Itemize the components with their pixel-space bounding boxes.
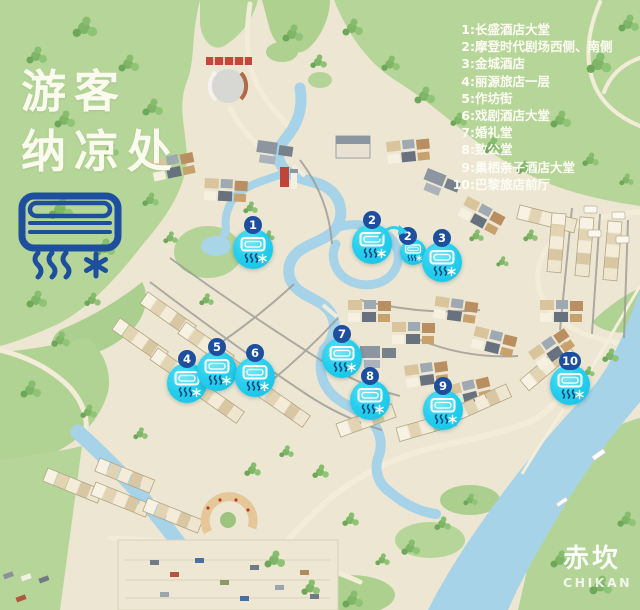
legend-item: 4:丽源旅店一层 [448, 73, 613, 90]
legend-item: 3:金城酒店 [448, 55, 613, 72]
legend-item: 1:长盛酒店大堂 [448, 21, 613, 38]
air-conditioner-icon [422, 242, 462, 282]
watermark-chinese: 赤坎 [563, 546, 632, 572]
airflow-waves-icon [35, 253, 69, 277]
air-conditioner-icon [235, 357, 275, 397]
marker-number: 5 [208, 338, 226, 356]
curved-arrow-icon [377, 223, 411, 243]
legend-item: 2:摩登时代剧场西侧、南侧 [448, 38, 613, 55]
map-marker-9: 9 [423, 390, 463, 430]
watermark-english: CHIKAN [563, 577, 632, 590]
map-marker-3: 3 [422, 242, 462, 282]
marker-number: 4 [178, 350, 196, 368]
air-conditioner-icon [197, 351, 237, 391]
legend-item: 9:巢栖亲子酒店大堂 [448, 159, 613, 176]
map-marker-1: 1 [233, 229, 273, 269]
marker-number: 1 [244, 216, 262, 234]
marker-number: 9 [434, 377, 452, 395]
air-conditioner-icon [233, 229, 273, 269]
legend: 1:长盛酒店大堂 2:摩登时代剧场西侧、南侧 3:金城酒店 4:丽源旅店一层 5… [448, 21, 613, 193]
map-marker-7: 7 [322, 338, 362, 378]
legend-item: 7:婚礼堂 [448, 124, 613, 141]
legend-item: 5:作坊街 [448, 90, 613, 107]
marker-number: 8 [361, 367, 379, 385]
watermark: 赤坎 CHIKAN [563, 546, 632, 590]
snowflake-asterisk-icon [86, 254, 105, 276]
title-line-1: 游客 [21, 62, 180, 122]
legend-item: 10:巴黎旅店前厅 [448, 176, 613, 193]
legend-item: 8:致公堂 [448, 141, 613, 158]
marker-number: 6 [246, 344, 264, 362]
map-marker-8: 8 [350, 380, 390, 420]
map-marker-10: 10 [550, 365, 590, 405]
tourist-cooling-map: 游客 纳凉处 1:长盛酒店大堂 2:摩登时代剧场西侧、南侧 3:金城酒店 4:丽 [0, 0, 640, 610]
title-line-2: 纳凉处 [21, 122, 180, 182]
marker-number: 7 [333, 325, 351, 343]
page-title: 游客 纳凉处 [21, 62, 180, 182]
air-conditioner-icon [16, 190, 126, 290]
legend-item: 6:戏剧酒店大堂 [448, 107, 613, 124]
air-conditioner-icon [423, 390, 463, 430]
map-marker-6: 6 [235, 357, 275, 397]
marker-number: 10 [559, 352, 581, 370]
marker-number: 3 [433, 229, 451, 247]
air-conditioner-icon [322, 338, 362, 378]
air-conditioner-icon [550, 365, 590, 405]
map-marker-5: 5 [197, 351, 237, 391]
air-conditioner-icon [350, 380, 390, 420]
